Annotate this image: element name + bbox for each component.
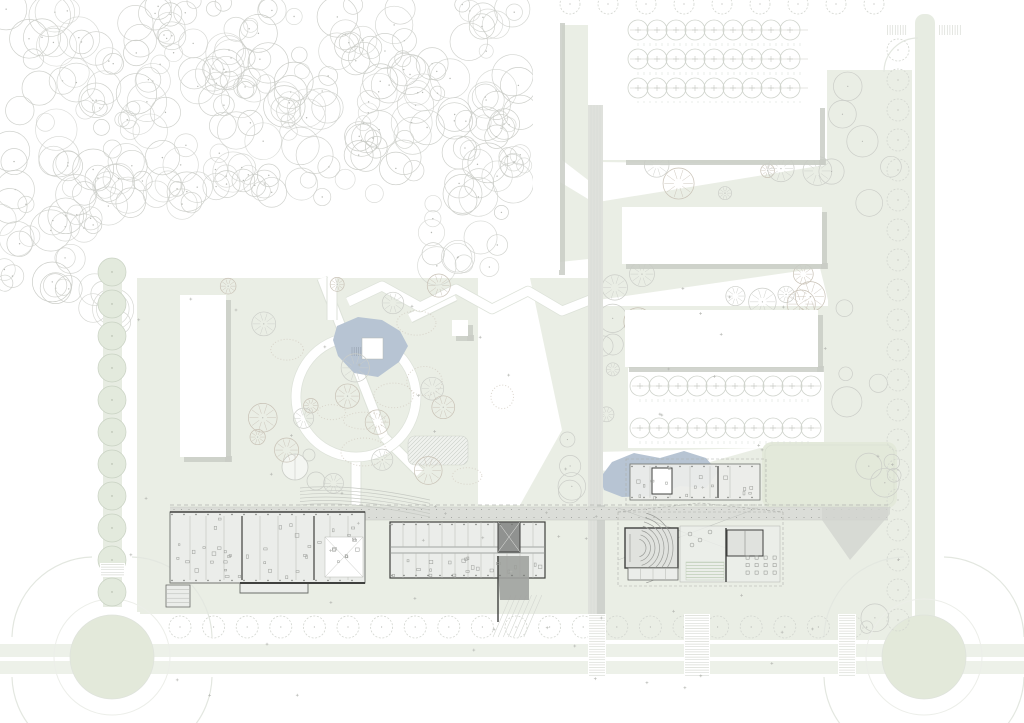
site-plan — [0, 0, 1024, 723]
site-plan-canvas — [0, 0, 1024, 723]
